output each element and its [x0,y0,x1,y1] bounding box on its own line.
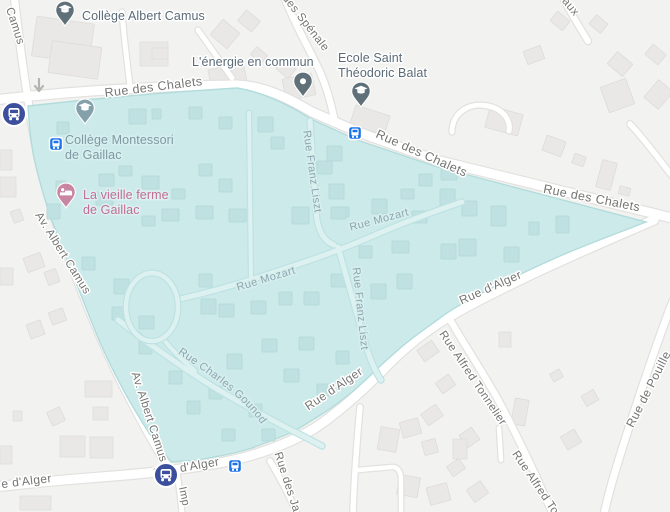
building [441,244,456,259]
building [222,429,235,441]
bus-stop-icon[interactable] [229,460,242,473]
building [20,496,51,510]
building [152,48,168,59]
building [199,274,212,287]
poi-label[interactable]: L'énergie en commun [192,55,314,69]
building [397,274,412,289]
building [284,369,299,382]
building [119,166,132,176]
building [0,150,12,170]
building [336,351,349,364]
tonnelier-stub-road [499,428,501,460]
building [82,257,95,270]
building [421,438,438,455]
bed-icon [61,188,64,191]
building [219,304,234,317]
building [60,436,85,457]
building [48,41,102,80]
building [317,161,332,174]
building [139,316,154,329]
building [189,107,202,119]
building [219,179,232,192]
building [227,354,242,369]
building [93,407,108,420]
building [271,137,284,149]
building [85,381,112,397]
building [90,437,113,458]
building [401,189,414,199]
building [371,284,386,299]
building [251,301,266,314]
building [0,446,12,464]
building [129,109,146,124]
bus-station-icon[interactable] [2,102,26,126]
building [187,401,200,414]
building [459,239,476,256]
building [142,216,155,226]
building [359,246,372,258]
building [201,299,216,314]
residential-stub-road [249,113,251,280]
building [13,411,22,421]
building [219,117,232,129]
pin-dot-icon [300,78,306,84]
building [499,332,511,347]
bus-station-icon[interactable] [154,463,178,487]
building [0,268,13,285]
building [392,241,409,253]
building [199,164,212,176]
building [453,439,467,459]
map-canvas[interactable]: CamusRue des Chaletsdes SpénaleauxRue de… [0,0,670,512]
building [99,174,114,186]
building [229,209,246,222]
building [279,292,292,305]
building [377,427,400,453]
building [491,206,506,226]
building [262,339,277,352]
building [162,209,179,221]
building [304,292,319,305]
building [331,207,346,219]
building [169,371,182,384]
bus-stop-icon[interactable] [349,127,362,140]
building [504,247,519,262]
building [329,184,344,199]
building [196,206,213,219]
building [262,429,275,441]
building [556,216,569,233]
building [0,177,16,197]
bus-stop-icon[interactable] [50,138,63,151]
building [419,174,432,186]
building [258,117,273,132]
building [299,337,314,350]
poi-label[interactable]: Collège Albert Camus [82,9,205,23]
building [327,146,342,161]
building [172,189,185,199]
building [152,109,161,119]
building [529,222,539,235]
map-viewport: CamusRue des Chaletsdes SpénaleauxRue de… [0,0,670,512]
building [47,204,60,219]
building [292,207,309,224]
